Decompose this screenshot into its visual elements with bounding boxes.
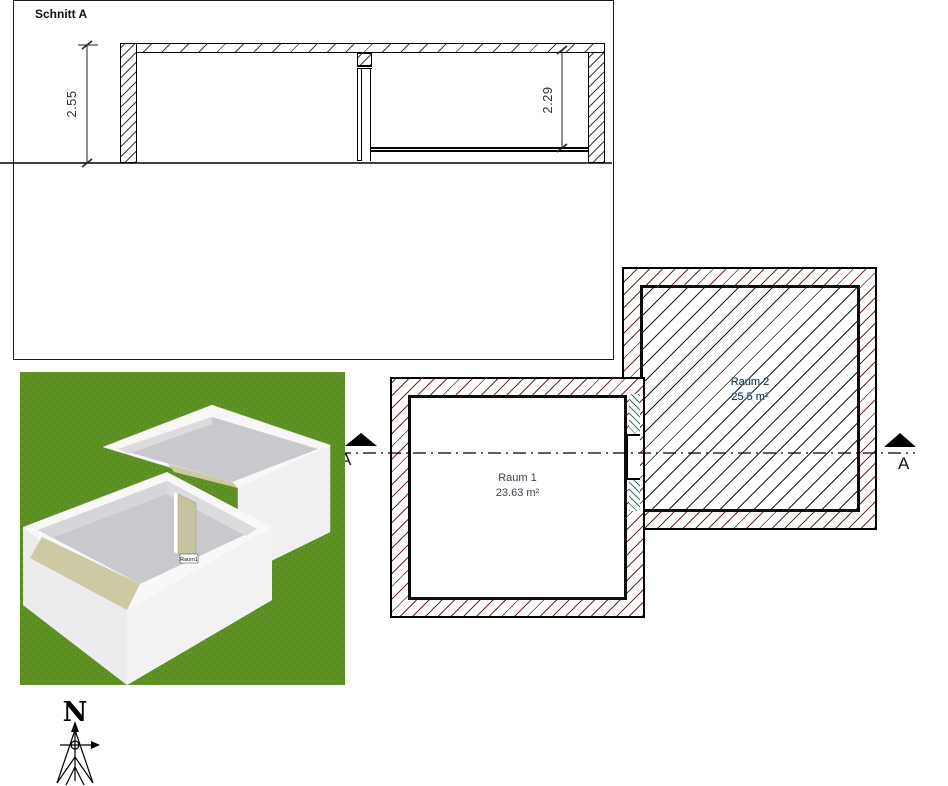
section-right-wall [588,50,605,163]
svg-text:Raum1: Raum1 [180,557,198,563]
dimension-label-left: 2.55 [64,82,80,126]
room2-name: Raum 2 [640,375,860,390]
viewport-3d[interactable]: Raum1 [20,372,345,685]
section-marker-right-triangle [884,433,916,447]
room1-name: Raum 1 [408,471,627,486]
section-marker-right-label[interactable]: A [898,454,909,474]
plan-wall-insulation-top [629,394,640,435]
section-marker-left-triangle [345,433,377,446]
room2-area: 25.5 m² [640,390,860,405]
room2-label[interactable]: Raum 2 25.5 m² [640,375,860,405]
plan-door-opening [627,434,640,480]
dimension-label-right: 2.29 [540,78,556,122]
compass-rose [57,721,100,785]
cad-workspace: Schnitt A 2.55 2.29 Raum 1 23.63 m² Raum… [0,0,948,786]
room1-area: 23.63 m² [408,486,627,501]
section-ceiling-slab [120,43,605,53]
north-arrow: N [48,697,110,786]
section-interior-wall-head [357,53,372,66]
room1-3d-tag: Raum1 [180,554,198,563]
section-left-wall [120,43,137,163]
section-title: Schnitt A [35,7,87,21]
section-raised-floor [371,147,588,152]
section-viewport[interactable]: Schnitt A [13,0,614,360]
section-door-leaf [357,68,362,161]
room1-label[interactable]: Raum 1 23.63 m² [408,471,627,501]
plan-wall-insulation-bottom [629,480,640,511]
